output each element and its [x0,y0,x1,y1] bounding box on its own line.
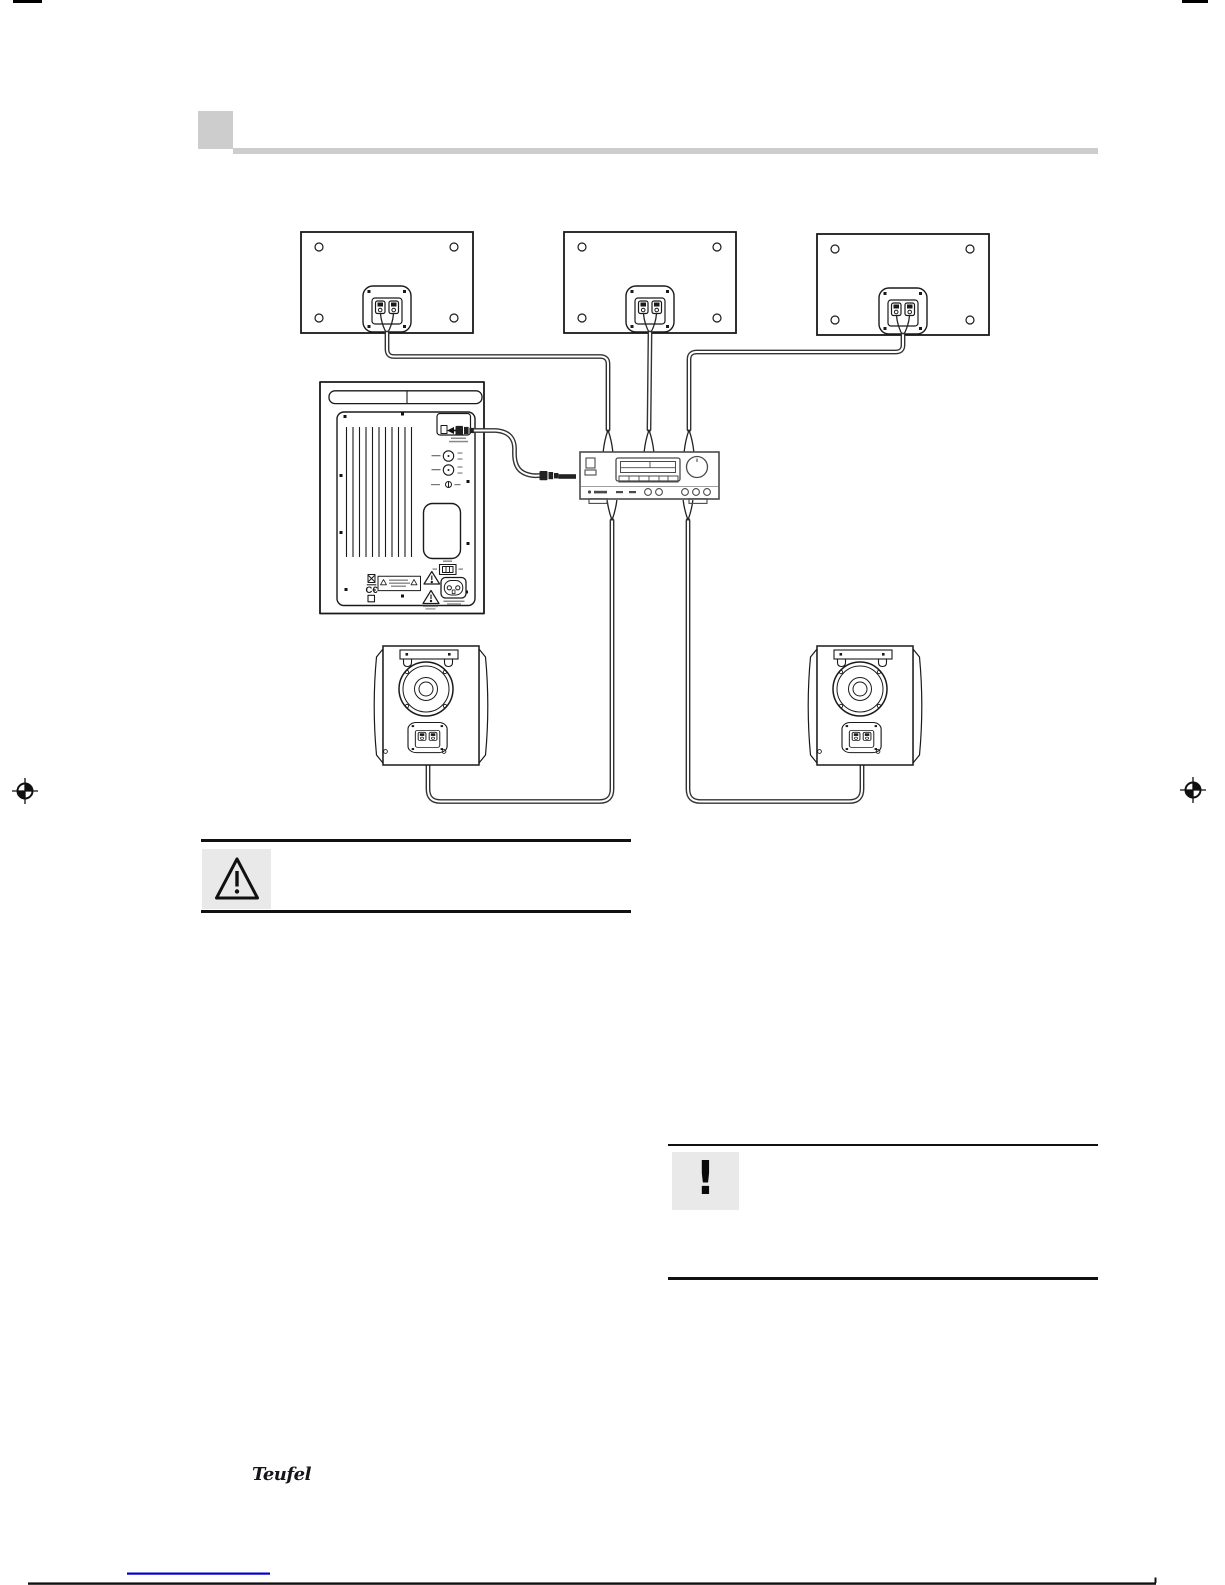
subwoofer-rear-panel: C€ [320,382,484,614]
wall-speaker-right [817,234,989,335]
registration-mark-right [1180,777,1206,803]
page-bottom-tick [1155,1578,1157,1584]
footer-blue-rule [127,1573,270,1575]
registration-mark-left [12,778,38,804]
important-callout-rule-top [668,1144,1098,1147]
wall-speaker-left [301,232,473,333]
manual-page: C€ [0,0,1225,1585]
satellite-speaker-right [808,646,922,765]
rating-label [378,576,421,590]
ce-mark: C€ [366,585,379,596]
satellite-speaker-left [374,646,488,765]
warning-callout-rule-bottom [201,910,631,913]
important-callout-icon-box: ! [672,1152,739,1210]
rca-plug-tip [559,474,577,479]
cable-center [649,333,650,430]
warning-callout-icon-box [202,849,271,909]
cable-front-right [689,335,903,430]
wiring-diagram: C€ [0,0,1225,1585]
crop-mark-top-left [13,0,42,3]
warning-triangle-icon [212,855,262,903]
page-bottom-rule [28,1582,1156,1584]
teufel-logo: Teufel [252,1464,332,1486]
subwoofer-handle-slot [329,391,482,404]
iec-power-inlet [441,578,466,605]
av-receiver [580,452,719,503]
important-callout-rule-bottom [668,1277,1098,1280]
warning-callout-rule-top [201,839,631,842]
wall-speaker-center [564,232,736,333]
exclamation-icon: ! [696,1155,715,1201]
bass-reflex-plate [424,504,461,559]
crop-mark-top-right [1182,0,1208,3]
